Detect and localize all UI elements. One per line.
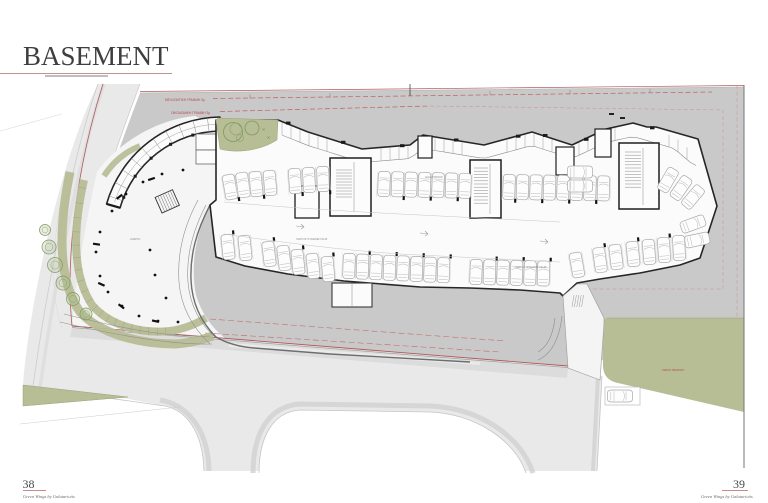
svg-text:ΜΕΛΛΟΝΤΙΚΗ ΓΡΑΜΜΗ 3μ: ΜΕΛΛΟΝΤΙΚΗ ΓΡΑΜΜΗ 3μ — [165, 98, 205, 102]
svg-text:ΟΙΚΟΔΟΜΙΚΗ ΓΡΑΜΜΗ 3μ: ΟΙΚΟΔΟΜΙΚΗ ΓΡΑΜΜΗ 3μ — [171, 111, 210, 115]
svg-text:ΧΩΡΟΣ ΠΡΑΣΙΝΟΥ: ΧΩΡΟΣ ΠΡΑΣΙΝΟΥ — [662, 368, 685, 372]
svg-text:ΧΩΡΟΣ ΣΤΑΘΜΕΥΣΗΣ: ΧΩΡΟΣ ΣΤΑΘΜΕΥΣΗΣ — [515, 265, 547, 269]
svg-text:ΧΩΡΟΣ ΣΤΑΘΜΕΥΣΗΣ: ΧΩΡΟΣ ΣΤΑΘΜΕΥΣΗΣ — [296, 237, 328, 241]
svg-text:ΔΙΑΔΡΟΜΟΣ: ΔΙΑΔΡΟΜΟΣ — [425, 175, 443, 179]
svg-text:ΑΙΘΡΙΟ: ΑΙΘΡΙΟ — [130, 237, 141, 241]
